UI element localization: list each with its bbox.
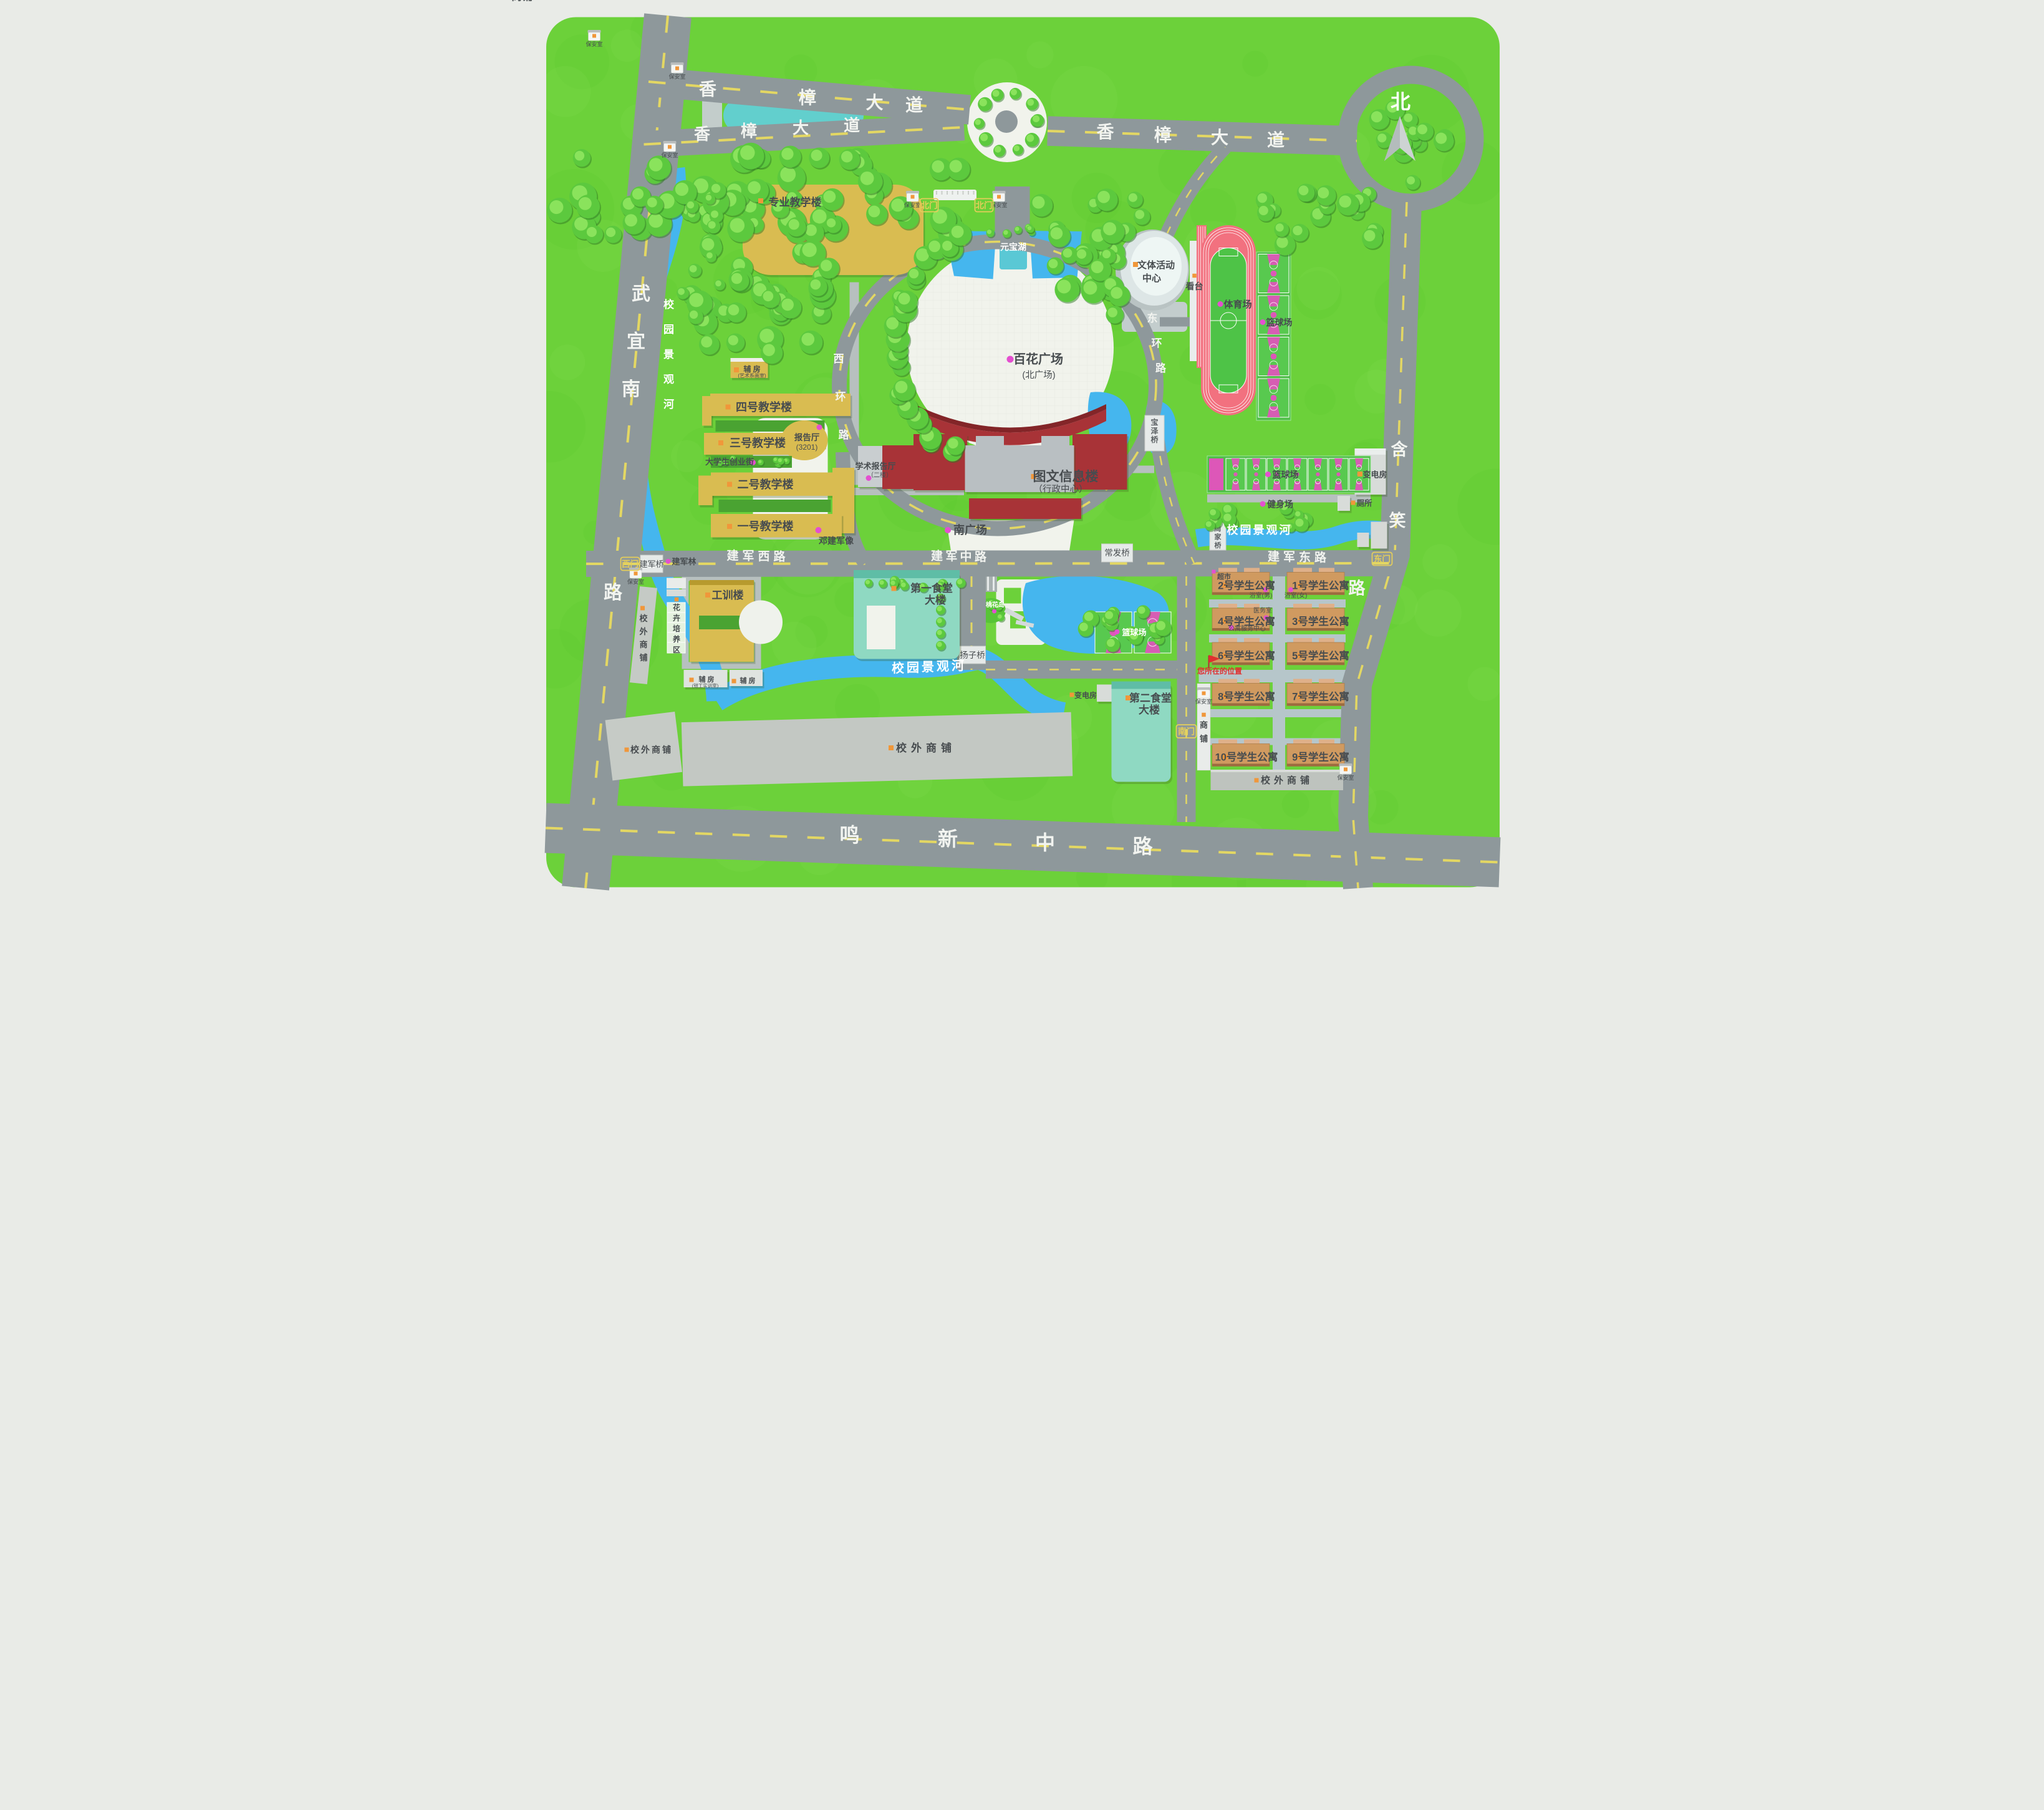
label-flower-zone: 卉 <box>672 613 680 622</box>
security-room-icon <box>1344 768 1347 772</box>
road-label-xiangzhang-upper: 樟 <box>798 87 816 107</box>
label-fitness: 健身场 <box>1267 500 1293 510</box>
road-label-hanxiao: 含 <box>1391 440 1408 459</box>
label-fufang_art: 辅 房 <box>743 364 760 374</box>
label-apt3: 3号学生公寓 <box>1292 615 1349 627</box>
label-canteen1-2: 大楼 <box>925 594 946 606</box>
place-icon <box>758 198 763 203</box>
road-label-mingxin: 鸣 <box>839 824 859 846</box>
label-substation_ne: 变电房 <box>1362 470 1387 480</box>
label-startup_street: 大学生创业街 <box>705 457 753 467</box>
campus-map-page: 建军桥常发桥周家桥宝泽桥扬子桥保安室保安室保安室保安室保安室保安室保安室保安室香… <box>511 0 1533 905</box>
label-bath_female: 浴室(女) <box>1284 591 1307 599</box>
label-flower-zone: 花 <box>672 603 680 612</box>
place-icon <box>1351 501 1355 505</box>
road-label-donghuan: 环 <box>1151 337 1162 349</box>
security-room-label: 保安室 <box>1337 774 1354 781</box>
place-icon <box>1254 778 1258 783</box>
security-room-label: 保安室 <box>586 41 602 47</box>
gate-east-label: 东门 <box>1374 554 1391 564</box>
bridge-baoze-label: 宝 <box>1150 417 1158 427</box>
label-teach4: 四号教学楼 <box>736 400 792 414</box>
label-teach2: 二号教学楼 <box>737 478 793 491</box>
road-label-donghuan: 东 <box>1147 312 1157 324</box>
label-canteen2-2: 大楼 <box>1139 704 1160 716</box>
bridge-changfa-label: 常发桥 <box>1104 548 1130 558</box>
label-supermarket: 超市 <box>1217 572 1231 581</box>
bridge-baoze-label: 泽 <box>1150 427 1158 435</box>
road-label-jianjun-east: 路 <box>1314 550 1326 564</box>
road-label-wuyi-south: 南 <box>622 379 640 400</box>
label-bath_male: 浴室(男) <box>1249 591 1272 599</box>
building-ne-block2 <box>1357 533 1369 547</box>
marker-dot <box>1260 501 1265 507</box>
road-label-jianjun-middle: 建 <box>930 549 942 563</box>
gate-west-label: 西门 <box>622 559 639 569</box>
gate-north2-label: 北门 <box>975 200 992 210</box>
label-bball_ne: 篮球场 <box>1265 317 1292 327</box>
security-room-label: 保安室 <box>904 201 920 208</box>
label-shops-west: 铺 <box>639 653 647 662</box>
place-icon <box>1212 570 1215 574</box>
label-academic_hall: 学术报告厅 <box>855 462 895 471</box>
label-south_square: 南广场 <box>953 523 987 536</box>
label-canteen1: 第一食堂 <box>910 582 953 594</box>
marker-dot <box>1265 472 1271 477</box>
security-room-label: 保安室 <box>661 152 678 158</box>
building-teach2-wing <box>698 476 713 506</box>
place-icon <box>734 367 739 372</box>
label-fufang_fitter: 辅 房 <box>698 675 714 684</box>
river-west-label: 校 <box>663 298 675 311</box>
marker-dot <box>816 425 822 430</box>
label-bball_mid: 篮球场 <box>1271 470 1298 480</box>
road-label-jianjun-west: 西 <box>758 550 769 563</box>
road-label-hanxiao: 路 <box>1348 579 1366 598</box>
road-label-jianjun-middle: 路 <box>974 549 986 564</box>
label-apt1: 1号学生公寓 <box>1292 579 1349 592</box>
bridge-yangzi-label: 扬子桥 <box>960 651 985 660</box>
north-label: 北 <box>1390 90 1410 113</box>
place-icon <box>689 678 693 682</box>
road-label-xiangzhang-right: 道 <box>1266 130 1284 150</box>
marker-dot <box>1260 319 1265 325</box>
label-shops-west: 外 <box>639 627 647 636</box>
taohua-island-label: 桃花岛 <box>986 601 1005 609</box>
road-label-jianjun-west: 军 <box>742 549 754 563</box>
you-are-here-label: 您所在的位置 <box>1197 666 1241 675</box>
building-toilet <box>1338 496 1350 511</box>
road-label-mingxin: 中 <box>1034 831 1054 854</box>
label-library: 图文信息楼 <box>1033 469 1098 484</box>
label-apt9: 9号学生公寓 <box>1292 751 1349 763</box>
north-gate-structure <box>933 190 976 200</box>
road-label-xiangzhang-lower: 道 <box>843 116 859 135</box>
road-label-xihuan: 西 <box>833 353 844 365</box>
place-icon <box>718 440 723 445</box>
road-label-jianjun-east: 东 <box>1298 550 1310 564</box>
road-label-xiangzhang-right: 樟 <box>1154 125 1171 145</box>
bridge-jianjun-label: 建军桥 <box>639 559 663 569</box>
place-icon <box>725 405 730 410</box>
label-activity_center-2: 中心 <box>1142 273 1160 284</box>
training-plaza <box>739 601 783 644</box>
security-room-label: 保安室 <box>668 73 685 80</box>
security-room-icon <box>1202 692 1205 695</box>
bridge-zhoujia-label: 桥 <box>1214 541 1222 549</box>
road-label-mingxin: 路 <box>1132 835 1153 858</box>
label-shops_bottom_center: 校外商铺 <box>896 742 956 754</box>
label-prof_teaching: 专业教学楼 <box>768 196 821 208</box>
road-label-xiangzhang-upper: 大 <box>865 93 883 112</box>
marker-dot <box>1114 629 1119 634</box>
river-west-label: 河 <box>663 399 674 410</box>
label-canteen2: 第二食堂 <box>1129 692 1172 704</box>
flower-house <box>667 578 686 589</box>
label-substation_s: 变电房 <box>1074 690 1096 700</box>
road-label-hanxiao: 笑 <box>1389 511 1405 530</box>
label-toilet: 厕所 <box>1356 498 1372 508</box>
marker-dot <box>945 527 951 533</box>
road-label-jianjun-east: 建 <box>1267 549 1279 564</box>
label-shops-west: 商 <box>639 640 647 649</box>
label-shop-strip: 商 <box>1199 720 1207 730</box>
label-fufang_fitter-sub: (钳工实训室) <box>692 682 718 689</box>
label-shops_west: 校外商铺 <box>511 0 533 2</box>
place-icon <box>674 598 678 602</box>
yuanbao-label: 元宝湖 <box>1000 242 1026 252</box>
road-label-jianjun-middle: 军 <box>945 549 957 563</box>
river-west-label: 景 <box>663 349 674 361</box>
label-jianjun_grove: 建军林 <box>672 557 696 566</box>
label-apt2: 2号学生公寓 <box>1218 579 1275 592</box>
place-icon <box>731 679 736 684</box>
label-flower-zone: 培 <box>672 624 680 633</box>
gate-north1-label: 北门 <box>920 200 937 210</box>
label-flower-zone: 养 <box>672 634 680 644</box>
north-plaza-center <box>995 110 1018 133</box>
label-grandstand: 看台 <box>1185 281 1203 291</box>
label-teach3: 三号教学楼 <box>730 437 786 450</box>
security-room-icon <box>675 67 679 70</box>
place-icon <box>705 593 710 598</box>
place-icon <box>1202 713 1206 717</box>
marker-dot <box>992 609 996 614</box>
river-south-label: 河 <box>952 659 964 673</box>
place-icon <box>889 745 894 750</box>
label-lecture_hall-sub: (3201) <box>796 443 817 452</box>
building-substation-south <box>1097 685 1112 702</box>
label-apt6: 6号学生公寓 <box>1218 649 1275 662</box>
river-south-label: 校 <box>892 661 905 675</box>
label-apt7: 7号学生公寓 <box>1292 690 1349 703</box>
label-apt8: 8号学生公寓 <box>1218 690 1275 703</box>
road-label-xiangzhang-lower: 大 <box>792 119 808 137</box>
place-icon <box>1192 274 1197 278</box>
marker-dot <box>665 559 670 564</box>
label-shops_bottom_left: 校外商铺 <box>630 745 673 755</box>
road-label-jianjun-east: 军 <box>1283 550 1294 564</box>
label-fufang_art-sub: (艺术系画室) <box>738 372 766 379</box>
bridge-baoze-label: 桥 <box>1150 435 1159 444</box>
building-ne-block1 <box>1371 522 1387 549</box>
security-room-icon <box>592 34 596 38</box>
place-icon <box>1357 472 1362 477</box>
label-teach1: 一号教学楼 <box>737 520 793 533</box>
label-apt10: 10号学生公寓 <box>1215 751 1278 763</box>
marker-dot <box>815 527 821 533</box>
place-icon <box>624 748 629 752</box>
road-label-xiangzhang-upper: 香 <box>698 80 716 99</box>
place-icon <box>727 482 732 487</box>
road-label-xiangzhang-lower: 樟 <box>740 122 756 140</box>
label-stadium: 体育场 <box>1223 299 1251 310</box>
label-flower-zone: 区 <box>672 646 680 654</box>
place-icon <box>640 606 645 611</box>
teach2-courtyard <box>718 500 831 512</box>
bridge-zhoujia-label: 家 <box>1214 533 1222 541</box>
road-label-jianjun-middle: 中 <box>960 549 971 564</box>
place-icon <box>891 586 896 591</box>
security-room-label: 保安室 <box>1195 698 1212 705</box>
road-label-wuyi-south: 武 <box>632 284 650 304</box>
security-room-icon <box>634 572 637 576</box>
label-academic_hall-sub: （二楼） <box>867 471 892 479</box>
marker-dot <box>1217 301 1223 307</box>
label-library-sub: （行政中心） <box>1033 484 1087 495</box>
marker-dot <box>1006 356 1013 363</box>
place-icon <box>727 524 732 529</box>
road-label-wuyi-south: 宜 <box>627 331 645 352</box>
gate-south-label: 南门 <box>1178 727 1195 737</box>
river-south-label: 景 <box>922 660 934 674</box>
label-lecture_hall: 报告厅 <box>794 432 819 442</box>
river-south-label: 园 <box>907 661 919 675</box>
river-west-label: 园 <box>663 324 674 336</box>
label-apt4: 4号学生公寓 <box>1218 615 1275 627</box>
road-label-xihuan: 路 <box>838 428 849 441</box>
label-shop-strip: 铺 <box>1199 734 1207 743</box>
campus-map-image: 建军桥常发桥周家桥宝泽桥扬子桥保安室保安室保安室保安室保安室保安室保安室保安室香… <box>511 0 1533 905</box>
security-room-icon <box>910 195 914 199</box>
river-west-label: 观 <box>663 374 674 385</box>
road-label-mingxin: 新 <box>937 828 957 850</box>
security-room-icon <box>997 195 1001 199</box>
road-label-xiangzhang-right: 香 <box>1096 122 1114 142</box>
river-east-label: 校园景观河 <box>1227 523 1292 536</box>
label-baihua_square: 百花广场 <box>1013 352 1063 367</box>
library-south-bar <box>969 498 1081 519</box>
road-label-xihuan: 环 <box>835 391 846 403</box>
security-room-label: 保安室 <box>627 578 644 585</box>
building-shops-bc <box>681 712 1072 786</box>
label-fufang2: 辅 房 <box>740 676 755 685</box>
road-label-wuyi-south: 路 <box>604 583 623 603</box>
label-bball_se: 篮球场 <box>1121 628 1146 637</box>
road-label-jianjun-west: 路 <box>773 549 786 564</box>
label-apt5: 5号学生公寓 <box>1292 649 1349 662</box>
label-shops_se: 校外商铺 <box>1260 775 1313 786</box>
road-label-xiangzhang-right: 大 <box>1210 128 1228 147</box>
security-room-icon <box>668 145 672 149</box>
river-south-label: 观 <box>937 660 949 674</box>
road-label-xiangzhang-upper: 道 <box>905 95 922 115</box>
road-label-jianjun-west: 建 <box>726 548 738 563</box>
road-label-xiangzhang-lower: 香 <box>693 125 710 143</box>
label-training_bldg: 工训楼 <box>711 589 743 601</box>
label-shops-west: 校 <box>639 614 648 623</box>
place-icon <box>1069 693 1074 697</box>
building-teach4-wing <box>702 396 711 426</box>
label-baihua_square-sub: (北广场) <box>1022 370 1055 380</box>
label-activity_center: 文体活动 <box>1137 259 1174 271</box>
label-clinic: 医务室 <box>1253 606 1272 614</box>
road-label-donghuan: 路 <box>1155 362 1167 374</box>
label-deng_statue: 邓建军像 <box>818 536 854 546</box>
